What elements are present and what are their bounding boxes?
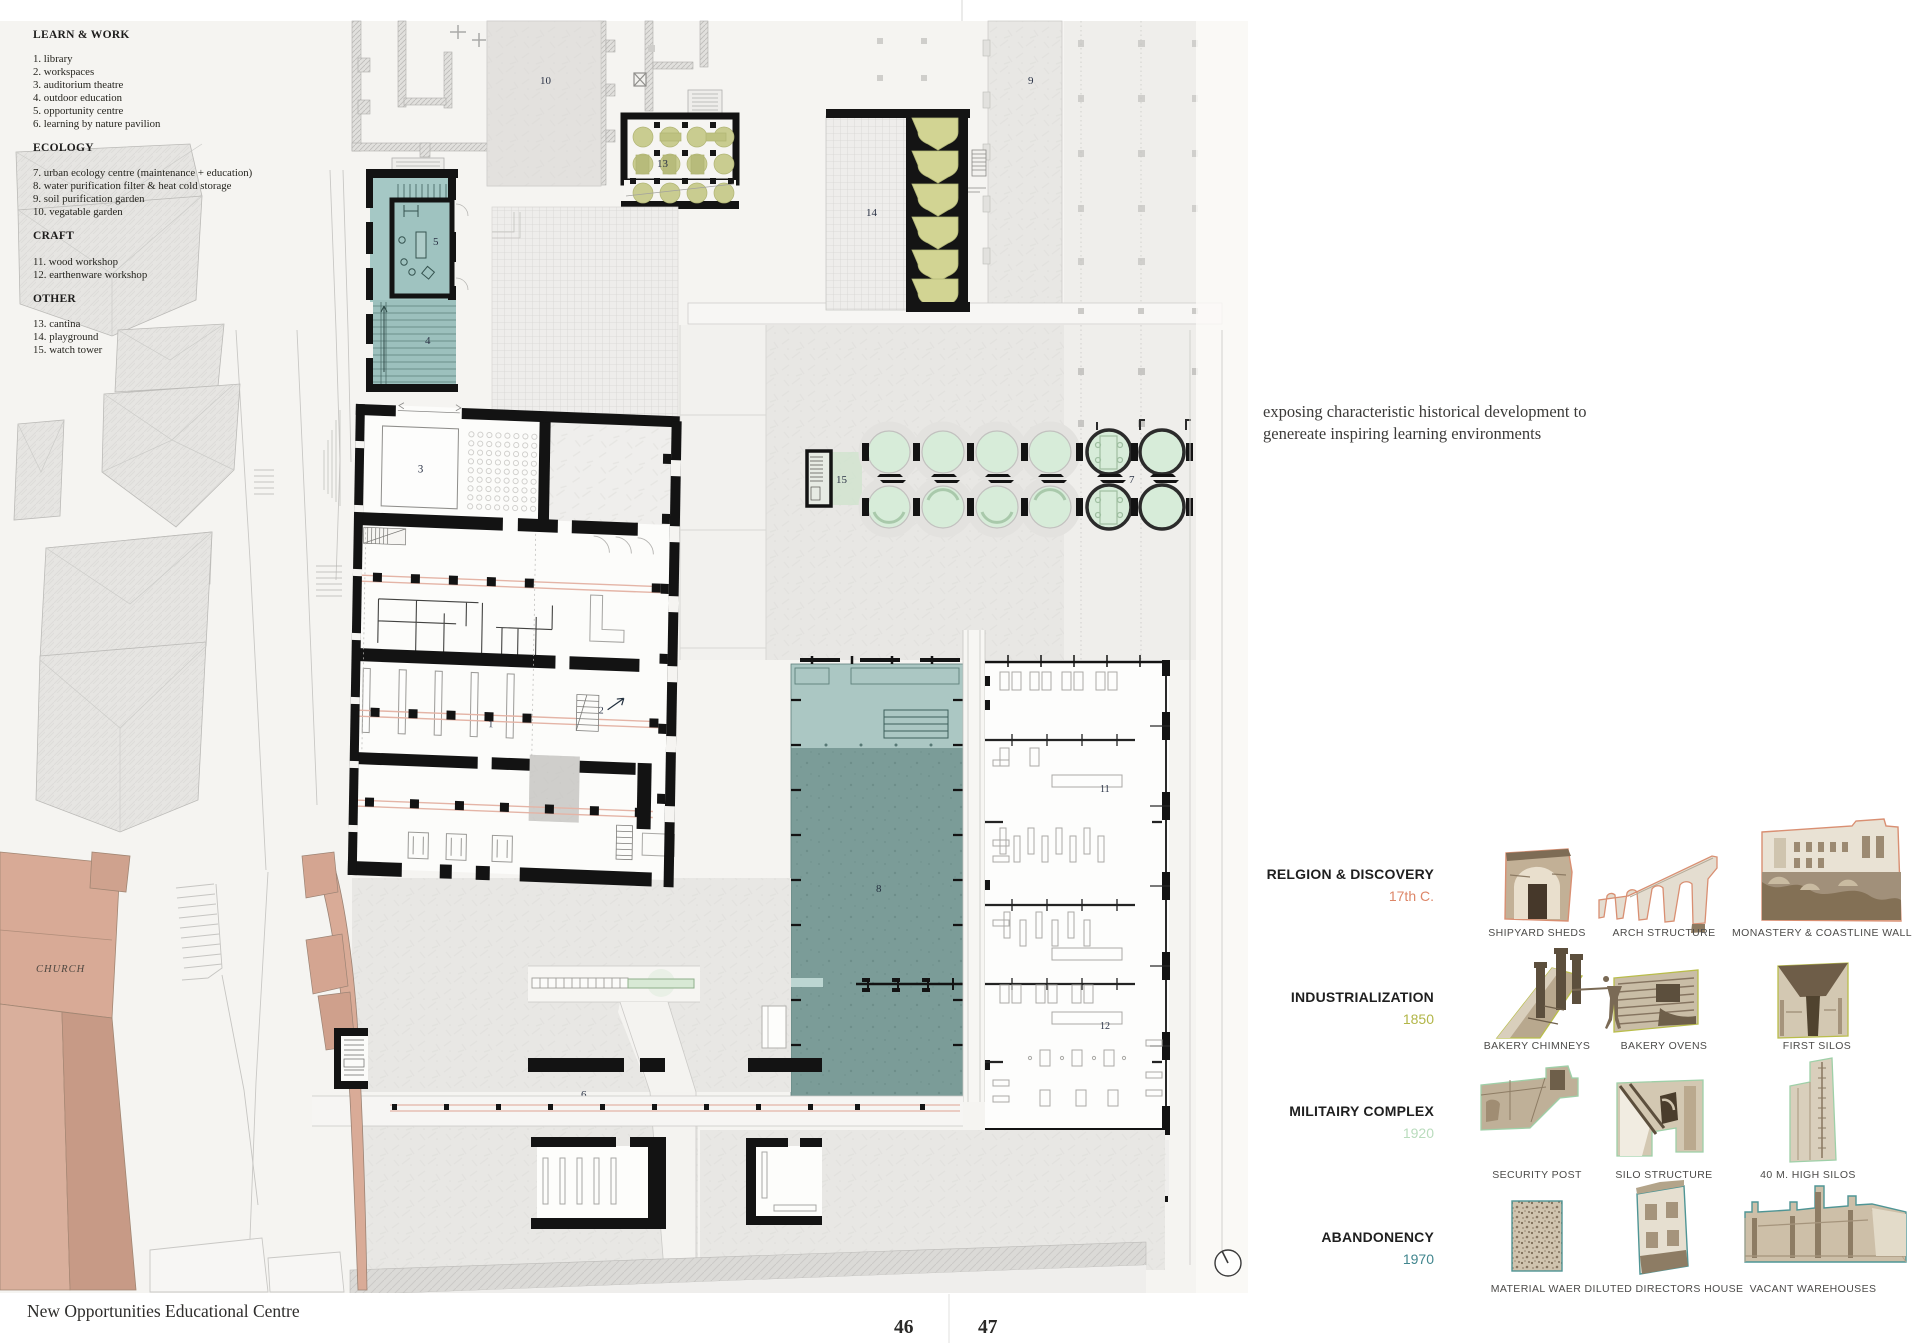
svg-text:BAKERY OVENS: BAKERY OVENS	[1621, 1040, 1708, 1052]
svg-text:exposing characteristic histor: exposing characteristic historical devel…	[1263, 402, 1586, 421]
svg-text:ABANDONENCY: ABANDONENCY	[1321, 1229, 1434, 1245]
svg-text:2: 2	[599, 705, 604, 716]
svg-text:MATERIAL WAER: MATERIAL WAER	[1491, 1283, 1582, 1295]
svg-text:7: 7	[1129, 474, 1135, 486]
svg-text:14. playground: 14. playground	[33, 331, 99, 343]
svg-text:4. outdoor education: 4. outdoor education	[33, 92, 123, 104]
svg-text:15: 15	[836, 474, 848, 486]
svg-text:14: 14	[866, 207, 878, 219]
svg-text:17th C.: 17th C.	[1389, 888, 1434, 904]
svg-text:8. water purification filter &: 8. water purification filter & heat cold…	[33, 180, 232, 192]
svg-text:DILUTED DIRECTORS HOUSE: DILUTED DIRECTORS HOUSE	[1585, 1283, 1744, 1295]
svg-text:8: 8	[876, 883, 882, 895]
svg-text:LEARN & WORK: LEARN & WORK	[33, 29, 130, 41]
svg-text:2. workspaces: 2. workspaces	[33, 66, 94, 78]
svg-text:FIRST SILOS: FIRST SILOS	[1783, 1040, 1851, 1052]
svg-text:BAKERY CHIMNEYS: BAKERY CHIMNEYS	[1484, 1040, 1591, 1052]
svg-text:13: 13	[657, 158, 669, 170]
svg-text:SILO STRUCTURE: SILO STRUCTURE	[1615, 1169, 1712, 1181]
svg-text:MILITAIRY COMPLEX: MILITAIRY COMPLEX	[1289, 1103, 1434, 1119]
svg-text:genereate inspiring learning e: genereate inspiring learning environment…	[1263, 424, 1541, 443]
svg-text:11. wood workshop: 11. wood workshop	[33, 256, 118, 268]
svg-text:3: 3	[418, 463, 424, 475]
svg-text:7. urban ecology centre (maint: 7. urban ecology centre (maintenance + e…	[33, 167, 253, 179]
svg-text:OTHER: OTHER	[33, 293, 76, 305]
svg-text:VACANT WAREHOUSES: VACANT WAREHOUSES	[1750, 1283, 1877, 1295]
svg-text:MONASTERY & COASTLINE WALL: MONASTERY & COASTLINE WALL	[1732, 927, 1912, 939]
svg-text:CHURCH: CHURCH	[36, 964, 86, 975]
svg-text:1850: 1850	[1403, 1011, 1434, 1027]
svg-text:3. auditorium theatre: 3. auditorium theatre	[33, 79, 123, 91]
svg-text:5: 5	[433, 236, 439, 248]
svg-text:SHIPYARD SHEDS: SHIPYARD SHEDS	[1488, 927, 1586, 939]
svg-text:SECURITY POST: SECURITY POST	[1492, 1169, 1582, 1181]
svg-text:RELGION & DISCOVERY: RELGION & DISCOVERY	[1267, 866, 1435, 882]
svg-text:11: 11	[1100, 784, 1110, 795]
svg-text:ARCH STRUCTURE: ARCH STRUCTURE	[1612, 927, 1715, 939]
svg-text:10. vegatable garden: 10. vegatable garden	[33, 206, 123, 218]
svg-text:4: 4	[425, 335, 431, 347]
svg-text:1: 1	[488, 719, 493, 730]
svg-text:CRAFT: CRAFT	[33, 230, 74, 242]
svg-text:6. learning by nature pavilion: 6. learning by nature pavilion	[33, 118, 161, 130]
svg-text:13. cantina: 13. cantina	[33, 318, 81, 330]
svg-text:9: 9	[1028, 75, 1034, 87]
svg-text:INDUSTRIALIZATION: INDUSTRIALIZATION	[1291, 989, 1434, 1005]
svg-text:5. opportunity centre: 5. opportunity centre	[33, 105, 123, 117]
svg-text:40 M. HIGH SILOS: 40 M. HIGH SILOS	[1760, 1169, 1856, 1181]
svg-text:15. watch tower: 15. watch tower	[33, 344, 103, 356]
svg-text:ECOLOGY: ECOLOGY	[33, 142, 94, 154]
svg-text:12. earthenware workshop: 12. earthenware workshop	[33, 269, 147, 281]
svg-text:9. soil purification garden: 9. soil purification garden	[33, 193, 145, 205]
svg-text:1920: 1920	[1403, 1125, 1434, 1141]
svg-text:10: 10	[540, 75, 552, 87]
svg-text:1970: 1970	[1403, 1251, 1434, 1267]
svg-text:12: 12	[1100, 1021, 1110, 1032]
svg-text:46: 46	[894, 1317, 914, 1338]
svg-text:1. library: 1. library	[33, 53, 73, 65]
svg-text:47: 47	[978, 1317, 998, 1338]
svg-text:New Opportunities Educational: New Opportunities Educational Centre	[27, 1301, 300, 1321]
